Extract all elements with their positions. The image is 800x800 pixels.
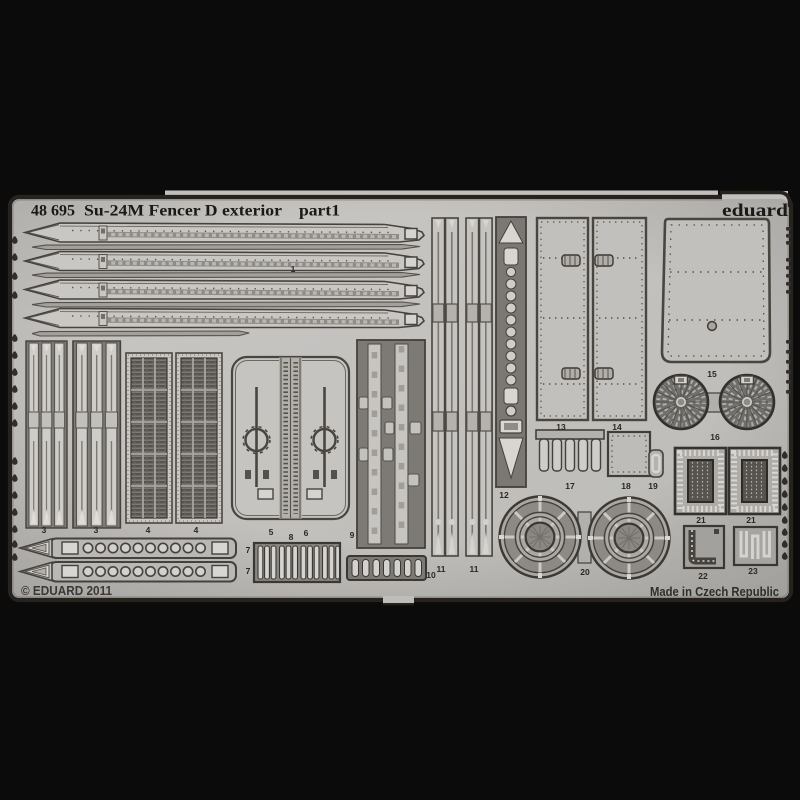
svg-text:4: 4 — [146, 525, 151, 535]
svg-text:15: 15 — [707, 369, 717, 379]
svg-text:21: 21 — [746, 515, 756, 525]
svg-text:10: 10 — [426, 570, 436, 580]
svg-text:11: 11 — [437, 564, 446, 574]
svg-text:5: 5 — [269, 527, 274, 537]
svg-text:7: 7 — [246, 545, 251, 555]
svg-text:48 695: 48 695 — [31, 203, 75, 220]
svg-text:7: 7 — [246, 566, 251, 576]
svg-text:21: 21 — [696, 515, 706, 525]
svg-text:20: 20 — [580, 567, 590, 577]
svg-text:14: 14 — [612, 422, 622, 432]
svg-text:1: 1 — [291, 264, 296, 274]
svg-text:© EDUARD 2011: © EDUARD 2011 — [21, 584, 112, 598]
svg-text:8: 8 — [289, 532, 294, 542]
svg-text:9: 9 — [350, 530, 355, 540]
svg-text:4: 4 — [194, 525, 199, 535]
svg-text:6: 6 — [304, 528, 309, 538]
svg-text:Made in Czech Republic: Made in Czech Republic — [650, 585, 779, 599]
svg-text:16: 16 — [710, 432, 720, 442]
svg-text:17: 17 — [565, 481, 575, 491]
svg-text:11: 11 — [470, 564, 479, 574]
svg-text:3: 3 — [94, 525, 99, 535]
svg-text:22: 22 — [698, 571, 708, 581]
svg-text:Su-24M Fencer D exterior: Su-24M Fencer D exterior — [84, 203, 282, 220]
svg-text:12: 12 — [499, 490, 509, 500]
svg-text:eduard: eduard — [722, 200, 788, 220]
svg-text:part1: part1 — [299, 203, 340, 220]
svg-text:23: 23 — [748, 566, 758, 576]
svg-text:18: 18 — [621, 481, 631, 491]
svg-text:3: 3 — [42, 525, 47, 535]
svg-text:19: 19 — [648, 481, 658, 491]
svg-text:13: 13 — [556, 422, 566, 432]
